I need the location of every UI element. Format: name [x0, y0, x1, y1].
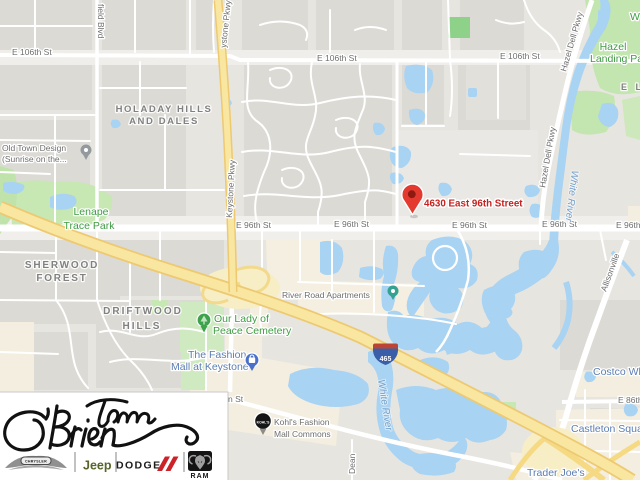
svg-text:Peace Cemetery: Peace Cemetery — [213, 325, 292, 337]
svg-text:Our Lady of: Our Lady of — [214, 313, 269, 325]
svg-text:W: W — [630, 11, 640, 23]
svg-text:Dean: Dean — [347, 453, 357, 474]
svg-text:DRIFTWOOD: DRIFTWOOD — [103, 306, 183, 317]
svg-text:E 106th St: E 106th St — [500, 51, 540, 61]
svg-text:465: 465 — [380, 356, 392, 363]
svg-text:E 86th S: E 86th S — [618, 395, 640, 405]
svg-text:Mall at Keystone: Mall at Keystone — [171, 361, 249, 373]
svg-text:E 106th St: E 106th St — [12, 47, 52, 57]
svg-text:E L: E L — [621, 82, 640, 92]
svg-text:Trader Joe's: Trader Joe's — [527, 467, 585, 479]
svg-text:E 96th St: E 96th St — [236, 220, 272, 230]
svg-text:Trace Park: Trace Park — [64, 220, 116, 232]
svg-text:Costco Wholesale: Costco Wholesale — [593, 366, 640, 378]
svg-text:Hazel: Hazel — [600, 41, 627, 53]
svg-text:CHRYSLER: CHRYSLER — [25, 460, 47, 464]
svg-text:field Blvd: field Blvd — [96, 4, 106, 39]
svg-text:The Fashion: The Fashion — [188, 349, 247, 361]
svg-text:E 96th St: E 96th St — [452, 220, 488, 230]
svg-text:Castleton Square: Castleton Square — [571, 423, 640, 435]
svg-text:RAM: RAM — [191, 473, 210, 480]
svg-text:Old Town Design: Old Town Design — [2, 143, 66, 153]
svg-text:E 96th St: E 96th St — [616, 220, 640, 230]
svg-text:DODGE: DODGE — [116, 460, 162, 472]
svg-text:Lenape: Lenape — [73, 206, 108, 218]
svg-text:(Sunrise on the...: (Sunrise on the... — [2, 154, 67, 164]
svg-text:FOREST: FOREST — [36, 273, 87, 284]
svg-text:Kohl's Fashion: Kohl's Fashion — [274, 417, 330, 427]
svg-text:n St: n St — [228, 394, 244, 404]
svg-text:River Road Apartments: River Road Apartments — [282, 290, 370, 300]
svg-text:E 106th St: E 106th St — [317, 53, 357, 63]
svg-text:Landing Park: Landing Park — [590, 53, 640, 65]
svg-text:AND DALES: AND DALES — [129, 116, 199, 127]
svg-text:Mall Commons: Mall Commons — [274, 429, 331, 439]
svg-text:HOLADAY HILLS: HOLADAY HILLS — [116, 104, 213, 115]
svg-text:4630 East 96th Street: 4630 East 96th Street — [424, 199, 523, 210]
svg-text:SHERWOOD: SHERWOOD — [25, 260, 99, 271]
svg-text:KOHL'S: KOHL'S — [257, 420, 270, 424]
svg-text:HILLS: HILLS — [123, 321, 162, 332]
svg-text:Jeep: Jeep — [83, 459, 112, 473]
svg-text:E 96th St: E 96th St — [334, 219, 370, 229]
